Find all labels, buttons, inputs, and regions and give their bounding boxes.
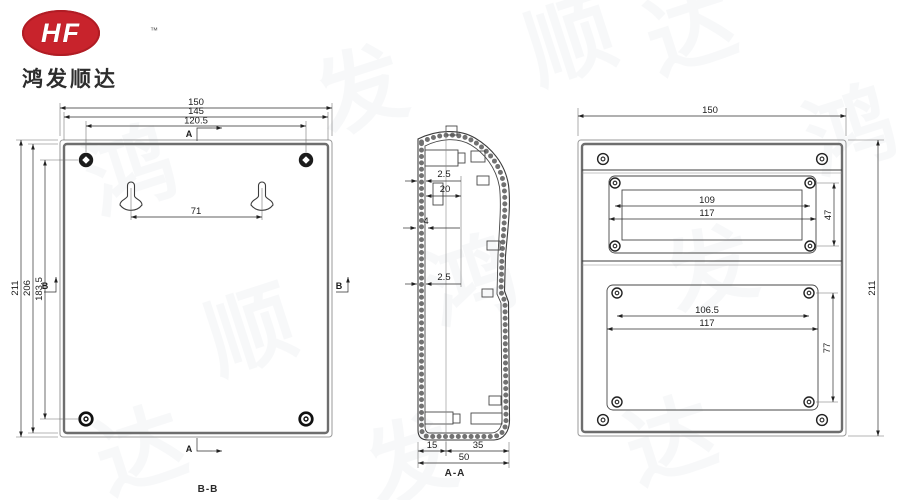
lower-panel-screw <box>612 397 622 407</box>
dim-wall-top: 2.5 <box>437 169 450 180</box>
dim-lower-screw-span: 106.5 <box>695 305 719 316</box>
trademark-symbol: ™ <box>150 26 158 35</box>
upper-panel-screw <box>610 241 620 251</box>
watermark-char: 达 <box>83 390 197 500</box>
dim-boss-depth: 20 <box>440 184 451 195</box>
dim-lower-height: 77 <box>822 343 833 354</box>
back-screw-bottom-right <box>817 415 828 426</box>
technical-drawing: 鸿 发 顺 达 顺 鸿 发 达 发 达 鸿 <box>0 0 900 500</box>
watermark-char: 鸿 <box>413 220 527 341</box>
hf-logo-text: HF <box>41 18 81 49</box>
keyhole-slot-right <box>251 182 273 220</box>
front-screw-bottom-left <box>80 413 93 426</box>
back-screw-strip-left <box>598 154 609 165</box>
dim-rib: 4 <box>423 216 428 227</box>
dim-front-height-outer: 211 <box>10 280 21 295</box>
brand-header: HF ™ 鸿发顺达 <box>22 10 118 93</box>
section-marker-b-right: B <box>336 281 343 291</box>
dim-front-screw-span-h: 120.5 <box>184 116 208 127</box>
watermark-char: 鸿 <box>73 110 187 231</box>
section-marker-b-left: B <box>42 281 49 291</box>
watermark-char: 鸿 <box>793 70 900 191</box>
dim-base-right: 35 <box>473 440 484 451</box>
dim-back-width: 150 <box>702 105 718 116</box>
watermark-char: 达 <box>613 380 727 500</box>
back-screw-strip-right <box>817 154 828 165</box>
upper-panel-screw <box>610 178 620 188</box>
front-screw-bottom-right <box>300 413 313 426</box>
watermark-char: 顺 <box>513 0 627 102</box>
dim-depth-total: 50 <box>459 452 470 463</box>
watermark-char: 达 <box>633 0 747 92</box>
front-screw-top-left <box>79 153 93 167</box>
lower-panel-screw <box>612 288 622 298</box>
dim-keyhole-span: 71 <box>191 206 202 217</box>
watermark-char: 顺 <box>193 270 307 391</box>
company-name: 鸿发顺达 <box>22 63 118 93</box>
dim-wall-mid: 2.5 <box>437 272 450 283</box>
drawing-sheet: HF ™ 鸿发顺达 鸿 发 顺 达 顺 鸿 发 达 发 达 鸿 <box>0 0 900 500</box>
dim-upper-screw-span: 109 <box>699 195 715 206</box>
dim-front-height-inner: 206 <box>22 280 33 296</box>
upper-panel-screw <box>805 241 815 251</box>
watermark-char: 发 <box>353 400 467 500</box>
upper-panel-screw <box>805 178 815 188</box>
lower-panel-screw <box>804 288 814 298</box>
lower-panel-screw <box>804 397 814 407</box>
front-screw-top-right <box>299 153 313 167</box>
dim-base-left: 15 <box>427 440 438 451</box>
section-marker-a-bottom: A <box>186 444 193 454</box>
back-screw-bottom-left <box>598 415 609 426</box>
dim-upper-height: 47 <box>823 210 834 221</box>
front-view-label: B-B <box>198 484 219 495</box>
dim-lower-recess-width: 117 <box>699 318 714 329</box>
section-marker-a-top: A <box>186 129 193 139</box>
dim-back-height: 211 <box>867 280 878 295</box>
hf-logo-oval: HF <box>22 10 100 56</box>
dim-upper-recess-width: 117 <box>699 208 714 219</box>
watermark-char: 发 <box>303 30 417 151</box>
section-view-label: A-A <box>445 468 466 479</box>
